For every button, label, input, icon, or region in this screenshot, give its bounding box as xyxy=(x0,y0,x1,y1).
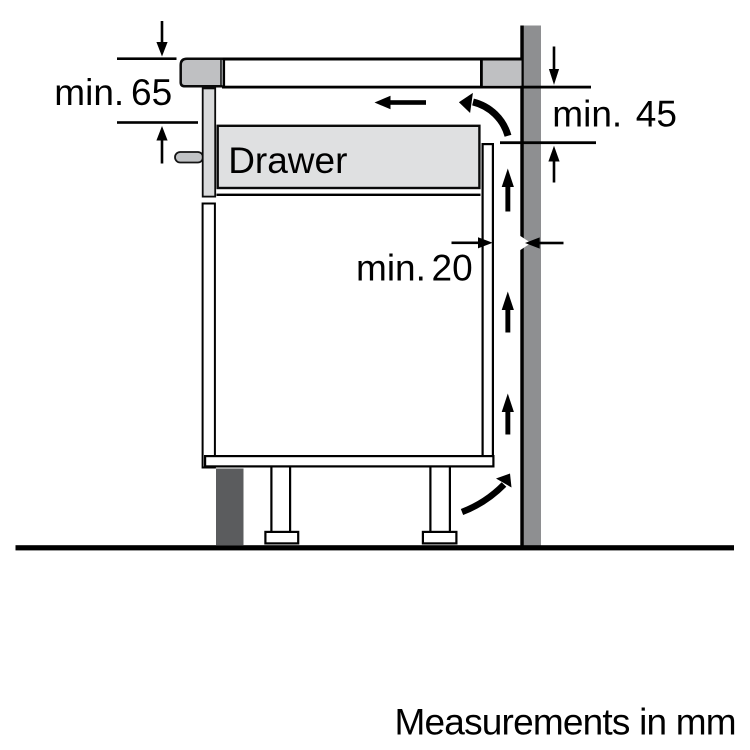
svg-text:min.: min. xyxy=(356,247,426,288)
svg-text:min.: min. xyxy=(552,93,622,134)
svg-text:Drawer: Drawer xyxy=(228,140,347,181)
svg-text:Measurements in mm: Measurements in mm xyxy=(395,701,736,742)
svg-text:65: 65 xyxy=(131,72,172,113)
svg-text:20: 20 xyxy=(432,247,473,288)
svg-text:min.: min. xyxy=(54,72,124,113)
svg-text:45: 45 xyxy=(636,93,677,134)
